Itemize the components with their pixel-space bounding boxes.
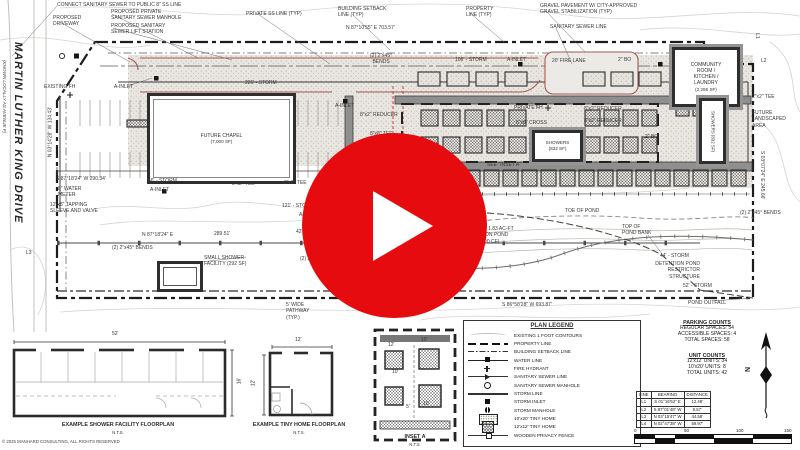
street-name: MARTIN LUTHER KING DRIVE [12, 42, 24, 267]
plan-annotation: 8"x8" CROSS [516, 120, 547, 126]
legend-row: STORM LINE [468, 389, 636, 397]
plan-annotation: 2" BO [645, 134, 658, 140]
plan-annotation: S 87°18'24" W 290.34' [56, 176, 106, 182]
table-cell: S 01°16'52" E [651, 399, 684, 406]
plan-annotation: TOP OF POND BANK [622, 224, 651, 237]
plan-annotation: L3 [26, 250, 32, 256]
legend-row: FIRE HYDRANT [468, 364, 636, 372]
inset-a-caption: INSET A [404, 434, 425, 440]
sewer-manhole [59, 53, 64, 58]
plan-annotation: 8" WATER METER [58, 186, 81, 199]
plan-annotation: 8"x2" TEE [284, 180, 307, 186]
copyright-text: © 2025 MANHARD CONSULTING, ALL RIGHTS RE… [2, 439, 120, 444]
table-cell: L4 [637, 421, 652, 428]
building-small-shower [157, 261, 203, 292]
scale-bar: 050100150 [634, 428, 794, 444]
table-cell: L1 [637, 399, 652, 406]
table-row: L2S 87°01'48" W8.57' [637, 406, 711, 413]
table-cell: 12.48' [684, 399, 710, 406]
legend-label: STORM LINE [514, 391, 543, 396]
dim-inset-10a: 10' [421, 337, 428, 343]
table-cell: 59.97' [684, 421, 710, 428]
plan-annotation: (2) 2"x45° BENDS [370, 53, 392, 66]
scale-ticks: 050100150 [634, 428, 794, 434]
plan-annotation: PROPOSED DRIVEWAY [53, 15, 81, 28]
north-label: N [745, 367, 752, 372]
water-line-symbol [468, 356, 508, 364]
scale-tick: 100 [736, 428, 744, 433]
dim-inset-5: 5' [406, 404, 410, 410]
tiny-home-floorplan-scale: N.T.S. [293, 430, 304, 435]
table-header: LINE [637, 392, 652, 399]
plan-annotation: A-INLET [114, 84, 133, 90]
building-area: (2,295 SF) [695, 87, 717, 93]
plan-annotation: L1 [754, 33, 760, 43]
plan-annotation: SEE "INSET A" [487, 162, 521, 168]
plan-legend: PLAN LEGEND EXISTING 1 FOOT CONTOURSPROP… [463, 320, 641, 447]
plan-annotation: 8"x2" REDUCER [360, 112, 398, 118]
legend-label: 10'x20' TINY HOME [514, 416, 556, 421]
plan-annotation: S 03°07'24" E 245.66' [759, 140, 765, 210]
plan-annotation: N 87°18'24" E [142, 232, 173, 238]
plan-annotation: POND OUTFALL [688, 300, 726, 306]
shower-floorplan-caption: EXAMPLE SHOWER FACILITY FLOORPLAN [62, 422, 174, 428]
line-bearing-table: LINEBEARINGDISTANCEL1S 01°16'52" E12.48'… [636, 391, 711, 428]
legend-label: EXISTING 1 FOOT CONTOURS [514, 333, 582, 338]
legend-label: STORM MANHOLE [514, 408, 555, 413]
legend-label: 12'x12' TINY HOME [514, 424, 556, 429]
dim-shower-width: 52' [112, 331, 119, 337]
plan-annotation: 5' WIDE PATHWAY (TYP.) [286, 302, 309, 321]
privacy-fence-symbol [468, 431, 508, 439]
inset-a-scale: N.T.S. [409, 442, 420, 447]
fire-hydrant-symbol [468, 365, 508, 373]
tiny-home-floorplan-drawing [258, 343, 338, 421]
plan-annotation: CONNECT SANITARY SEWER TO PUBLIC 8" SS L… [57, 2, 181, 8]
plan-annotation: SMALL SHOWER FACILITY (292 SF) [204, 255, 246, 268]
plan-annotation: BUILDING SETBACK LINE (TYP) [338, 6, 386, 19]
plan-annotation: (2) 2"x45° BENDS [112, 245, 153, 251]
legend-row: WATER LINE [468, 356, 636, 364]
legend-row: SANITARY SEWER LINE [468, 373, 636, 381]
plan-annotation: 8"x2" REDUCER [584, 118, 622, 124]
plan-annotation: 66' - STORM [148, 178, 177, 184]
table-cell: 8.57' [684, 406, 710, 413]
building-future-chapel: FUTURE CHAPEL (7,000 SF) [147, 93, 296, 184]
plan-annotation: N 03°14'28" W 134.43' [47, 100, 53, 165]
plan-annotation: PROPOSED SANITARY SEWER LIFT STATION [111, 23, 165, 36]
plan-annotation: PRIVATE SS LINE (TYP) [246, 11, 302, 17]
play-icon [373, 191, 433, 261]
plan-annotation: 8"x2" REDUCER [584, 106, 622, 112]
plan-annotation: EXISTING FH [44, 84, 75, 90]
plan-annotation: L2 [761, 58, 767, 64]
shower-floorplan-scale: N.T.S. [112, 430, 123, 435]
plan-annotation: S 86°58'28" W 693.87' [502, 302, 552, 308]
legend-label: FIRE HYDRANT [514, 366, 549, 371]
legend-row: 12'x12' TINY HOME [468, 423, 636, 431]
table-header: DISTANCE [684, 392, 710, 399]
dim-inset-12: 12' [388, 342, 395, 348]
plan-annotation: GRAVEL PAVEMENT W/ CITY-APPROVED GRAVEL … [540, 3, 637, 16]
table-cell: L2 [637, 406, 652, 413]
dim-tiny-width: 12' [295, 337, 302, 343]
plan-annotation: A-INLET [150, 187, 169, 193]
building-label: COMMUNITY ROOM / KITCHEN / LAUNDRY [691, 62, 722, 87]
table-cell: 44.58' [684, 413, 710, 420]
plan-annotation: N 87°10'55" E 703.57' [346, 25, 395, 31]
plan-annotation: 44' - STORM [660, 253, 689, 259]
legend-label: WOODEN PRIVACY FENCE [514, 433, 574, 438]
legend-label: WATER LINE [514, 358, 542, 363]
legend-row: WOODEN PRIVACY FENCE [468, 431, 636, 439]
plan-annotation: 226' - STORM [245, 80, 277, 86]
tiny-home-floorplan-caption: EXAMPLE TINY HOME FLOORPLAN [253, 422, 345, 428]
legend-label: SANITARY SEWER LINE [514, 374, 567, 379]
plan-annotation: 20' FIRE LANE [552, 58, 586, 64]
plan-annotation: 8"x2" TEE [232, 181, 255, 187]
plan-annotation: A-INLET [335, 103, 354, 109]
building-area: (832 SF) [549, 146, 567, 152]
plan-annotation: PROPERTY LINE (TYP) [466, 6, 493, 19]
building-showers-vertical: SHOWERS (832 SF) [699, 98, 726, 164]
scale-tick: 150 [784, 428, 792, 433]
table-header: BEARING [651, 392, 684, 399]
legend-row: BUILDING SETBACK LINE [468, 348, 636, 356]
plan-annotation: FUTURE LANDSCAPED AREA [752, 110, 786, 129]
storm-line-symbol [468, 390, 508, 398]
dim-shower-height: 16' [236, 378, 242, 385]
legend-row: EXISTING 1 FOOT CONTOURS [468, 331, 636, 339]
plan-annotation: (2) 2"x45° BENDS [740, 210, 781, 216]
setback-line-symbol [468, 348, 508, 356]
plan-annotation: 12"x8" TAPPING SLEEVE AND VALVE [50, 202, 98, 215]
play-button[interactable] [302, 133, 487, 318]
contour-symbol [468, 331, 508, 339]
legend-row: STORM INLET [468, 398, 636, 406]
plan-annotation: 52' - STORM [683, 283, 712, 289]
north-arrow [748, 330, 784, 420]
legend-label: BUILDING SETBACK LINE [514, 349, 571, 354]
plan-annotation: DETENTION POND RESTRICTOR STRUCTURE [630, 261, 700, 280]
plan-annotation: PROPOSED PRIVATE SANITARY SEWER MANHOLE [111, 9, 181, 22]
plan-annotation: 2"x2" TEE [752, 94, 775, 100]
storm-inlet-symbol [468, 398, 508, 406]
legend-label: STORM INLET [514, 399, 545, 404]
shower-floorplan-drawing [6, 338, 236, 418]
table-cell: N 02°47'38" W [651, 421, 684, 428]
plan-annotation: 2" BO [618, 57, 631, 63]
tiny-home-12x12-symbol [468, 423, 508, 431]
building-showers: SHOWERS (832 SF) [532, 130, 583, 162]
plan-annotation: 289.51' [214, 231, 230, 237]
legend-items: EXISTING 1 FOOT CONTOURSPROPERTY LINEBUI… [468, 331, 636, 439]
scale-tick: 50 [684, 428, 689, 433]
scale-tick: 0 [634, 428, 637, 433]
dim-tiny-height: 12' [250, 380, 256, 387]
table-row: L1S 01°16'52" E12.48' [637, 399, 711, 406]
table-row: L4N 02°47'38" W59.97' [637, 421, 711, 428]
legend-row: PROPERTY LINE [468, 339, 636, 347]
sanitary-line-symbol [468, 373, 508, 381]
street-alias: (KNOWN LOCALLY AS AVENUE F) [2, 60, 7, 260]
plan-annotation: 106' - STORM [455, 57, 487, 63]
sanitary-manhole-symbol [468, 381, 508, 389]
building-label: SHOWERS (832 SF) [710, 111, 716, 152]
table-cell: S 87°01'48" W [651, 406, 684, 413]
plan-annotation: PRIVATE FH [514, 105, 543, 111]
plan-annotation: TOE OF POND [565, 208, 599, 214]
table-row: L3N 03°15'47" W44.58' [637, 413, 711, 420]
legend-label: SANITARY SEWER MANHOLE [514, 383, 580, 388]
legend-label: PROPERTY LINE [514, 341, 551, 346]
table-cell: L3 [637, 413, 652, 420]
table-cell: N 03°15'47" W [651, 413, 684, 420]
property-line-symbol [468, 340, 508, 348]
legend-row: SANITARY SEWER MANHOLE [468, 381, 636, 389]
building-area: (7,000 SF) [211, 139, 233, 145]
scale-bar-row-bottom [634, 439, 792, 444]
plan-annotation: A-INLET [507, 57, 526, 63]
legend-title: PLAN LEGEND [468, 323, 636, 329]
plan-annotation: SANITARY SEWER LINE [550, 24, 607, 30]
dim-inset-10c: 10' [423, 401, 430, 407]
inset-a-drawing [371, 327, 459, 443]
video-thumbnail: (KNOWN LOCALLY AS AVENUE F) MARTIN LUTHE… [0, 0, 800, 450]
dim-inset-10b: 10' [392, 369, 399, 375]
